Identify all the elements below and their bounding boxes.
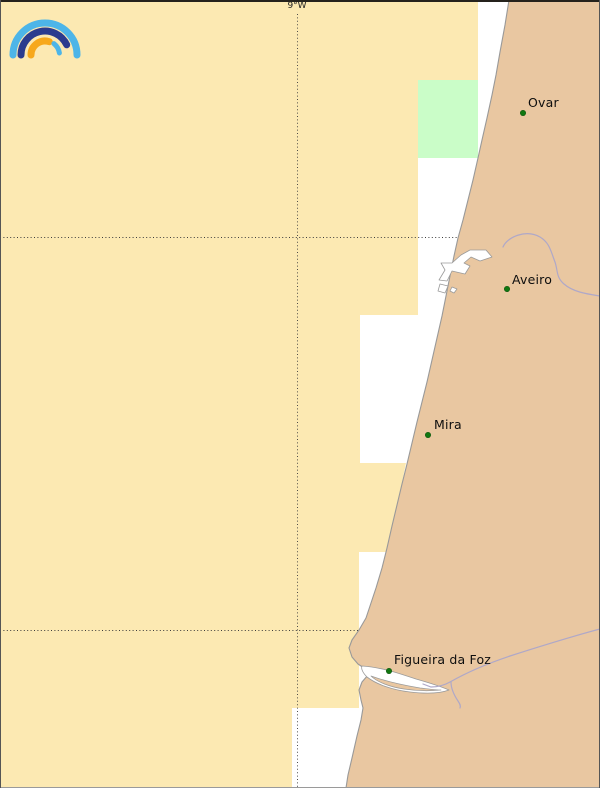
city-label-ovar: Ovar xyxy=(528,95,559,110)
city-dot-ovar xyxy=(521,111,526,116)
city-dot-mira xyxy=(426,433,431,438)
coastal-weather-map: 9°W Ovar Aveiro Mira Figueira da Foz xyxy=(0,0,600,788)
city-label-aveiro: Aveiro xyxy=(512,272,552,287)
rainbow-arcs-logo xyxy=(0,0,100,80)
frame-left xyxy=(0,0,1,788)
sea-area-green xyxy=(418,80,478,158)
city-dot-figueira-da-foz xyxy=(387,669,392,674)
city-label-figueira-da-foz: Figueira da Foz xyxy=(394,652,491,667)
city-dot-aveiro xyxy=(505,287,510,292)
logo-arc-orange xyxy=(31,41,49,55)
map-canvas xyxy=(0,0,600,788)
city-label-mira: Mira xyxy=(434,417,462,432)
logo-arc-inner-lightblue xyxy=(54,44,60,53)
meridian-label: 9°W xyxy=(287,1,306,11)
